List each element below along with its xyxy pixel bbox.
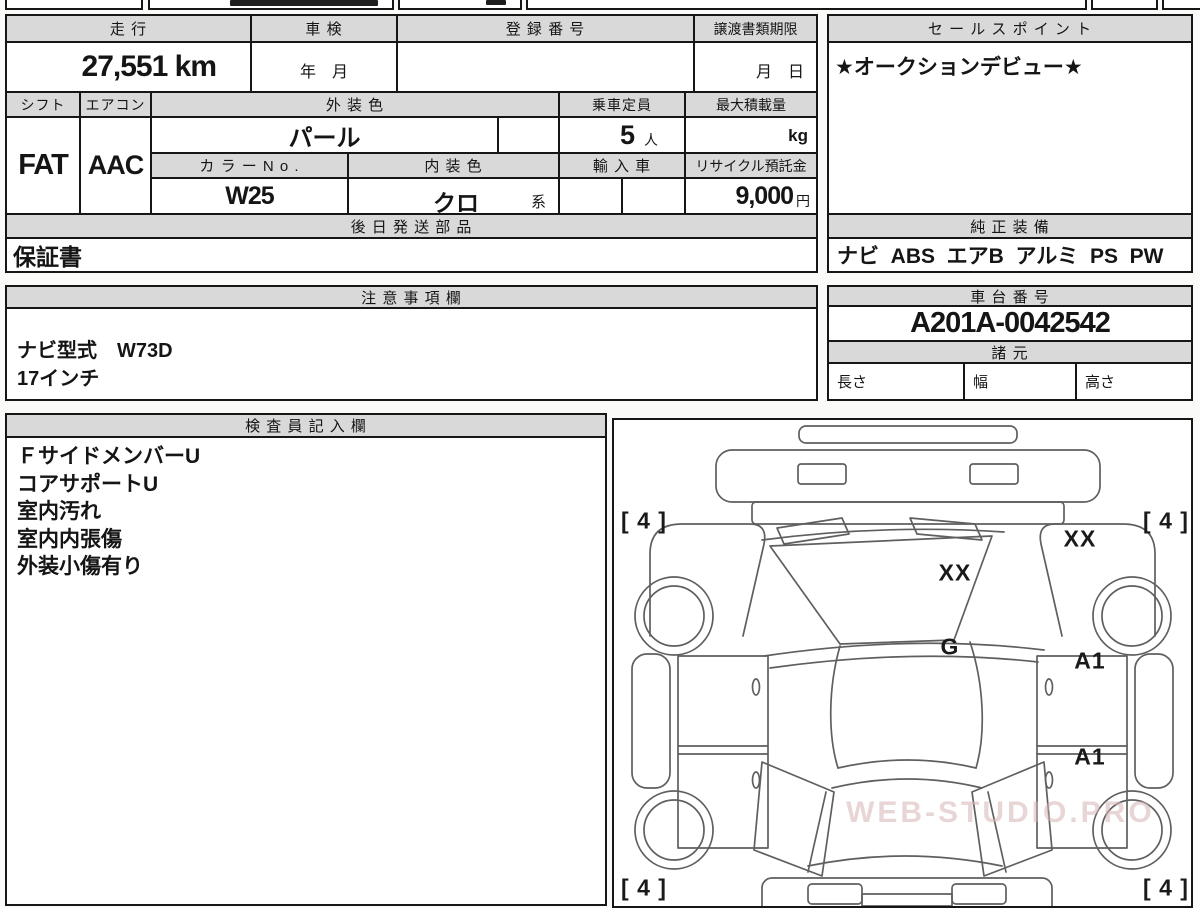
aircon-header: エアコン — [79, 91, 152, 118]
aircon-value: AAC — [79, 116, 152, 215]
equipment-header: 純 正 装 備 — [827, 213, 1193, 239]
inspector-content: ＦサイドメンバーUコアサポートU室内汚れ室内内張傷外装小傷有り — [5, 436, 607, 906]
inspector-note-line: 外装小傷有り — [17, 553, 605, 581]
spec-length-cell: 長さ — [827, 362, 965, 401]
diagram-mark: XX — [939, 560, 972, 587]
recycle-deposit-unit: 円 — [796, 182, 810, 211]
cutoff-text-fragment — [486, 0, 506, 5]
max-load-header: 最大積載量 — [684, 91, 818, 118]
diagram-mark: [ 4 ] — [1143, 875, 1189, 902]
remarks-content: ナビ型式 W73D17インチ — [5, 307, 818, 401]
cutoff-text-fragment — [230, 0, 378, 6]
shaken-value: 年 月 — [250, 41, 398, 93]
remarks-header: 注 意 事 項 欄 — [5, 285, 818, 309]
capacity-header: 乗車定員 — [558, 91, 686, 118]
exterior-color-value: パール — [150, 116, 499, 154]
registration-header: 登 録 番 号 — [396, 14, 695, 43]
shift-header: シフト — [5, 91, 81, 118]
mileage-value: 27,551 km — [5, 41, 252, 93]
recycle-deposit-value: 9,000 — [735, 182, 793, 211]
diagram-mark: A1 — [1074, 648, 1105, 675]
diagram-mark: XX — [1064, 526, 1097, 553]
interior-color-header: 内 装 色 — [347, 152, 560, 179]
equipment-value: ナビ ABS エアB アルミ PS PW — [827, 237, 1193, 273]
recycle-deposit-header: リサイクル預託金 — [684, 152, 818, 179]
color-no-value: W25 — [150, 177, 349, 215]
capacity-value: 5 — [620, 120, 634, 151]
transfer-docs-value: 月 日 — [693, 41, 818, 93]
interior-color-cell: クロ 系 — [347, 177, 560, 215]
capacity-value-cell: 5 人 — [558, 116, 686, 154]
cutoff-cell — [5, 0, 143, 10]
inspector-note-line: 室内内張傷 — [17, 526, 605, 554]
shift-value: FAT — [5, 116, 81, 215]
diagram-mark: G — [941, 634, 960, 661]
recycle-deposit-cell: 9,000 円 — [684, 177, 818, 215]
later-parts-value: 保証書 — [5, 237, 818, 273]
cutoff-cell — [1162, 0, 1200, 10]
transfer-docs-header: 譲渡書類期限 — [693, 14, 818, 43]
sales-point-header: セ ー ル ス ポ イ ン ト — [827, 14, 1193, 43]
shaken-header: 車 検 — [250, 14, 398, 43]
spec-width-cell: 幅 — [963, 362, 1077, 401]
diagram-mark: [ 4 ] — [1143, 508, 1189, 535]
cutoff-cell — [526, 0, 1087, 10]
diagram-marks: [ 4 ][ 4 ]XXXXGA1A1[ 4 ][ 4 ] — [614, 420, 1191, 906]
import-car-header: 輸 入 車 — [558, 152, 686, 179]
cutoff-cell — [1091, 0, 1158, 10]
interior-color-suffix: 系 — [531, 191, 546, 212]
chassis-value: A201A-0042542 — [827, 305, 1193, 342]
import-car-cell-2 — [621, 177, 686, 215]
cutoff-cell — [398, 0, 522, 10]
exterior-color-extra-cell — [497, 116, 560, 154]
inspector-note-line: コアサポートU — [17, 471, 605, 499]
import-car-cell-1 — [558, 177, 623, 215]
max-load-cell: kg — [684, 116, 818, 154]
remark-line: 17インチ — [17, 365, 816, 393]
registration-value — [396, 41, 695, 93]
mileage-header: 走 行 — [5, 14, 252, 43]
spec-height-cell: 高さ — [1075, 362, 1193, 401]
capacity-unit: 人 — [644, 120, 658, 150]
cutoff-cell — [148, 0, 394, 10]
diagram-mark: [ 4 ] — [621, 875, 667, 902]
remark-line: ナビ型式 W73D — [17, 337, 816, 365]
later-parts-header: 後 日 発 送 部 品 — [5, 213, 818, 239]
exterior-color-header: 外 装 色 — [150, 91, 560, 118]
inspector-note-line: ＦサイドメンバーU — [17, 443, 605, 471]
specs-header: 諸 元 — [827, 340, 1193, 364]
car-diagram-box: WEB-STUDIO.PRO [ 4 ][ 4 ]XXXXGA1A1[ 4 ][… — [612, 418, 1193, 908]
diagram-mark: [ 4 ] — [621, 508, 667, 535]
diagram-mark: A1 — [1074, 744, 1105, 771]
inspector-header: 検 査 員 記 入 欄 — [5, 413, 607, 438]
color-no-header: カ ラ ー N o . — [150, 152, 349, 179]
inspector-note-line: 室内汚れ — [17, 498, 605, 526]
sales-point-value: ★オークションデビュー★ — [827, 41, 1193, 215]
chassis-header: 車 台 番 号 — [827, 285, 1193, 307]
